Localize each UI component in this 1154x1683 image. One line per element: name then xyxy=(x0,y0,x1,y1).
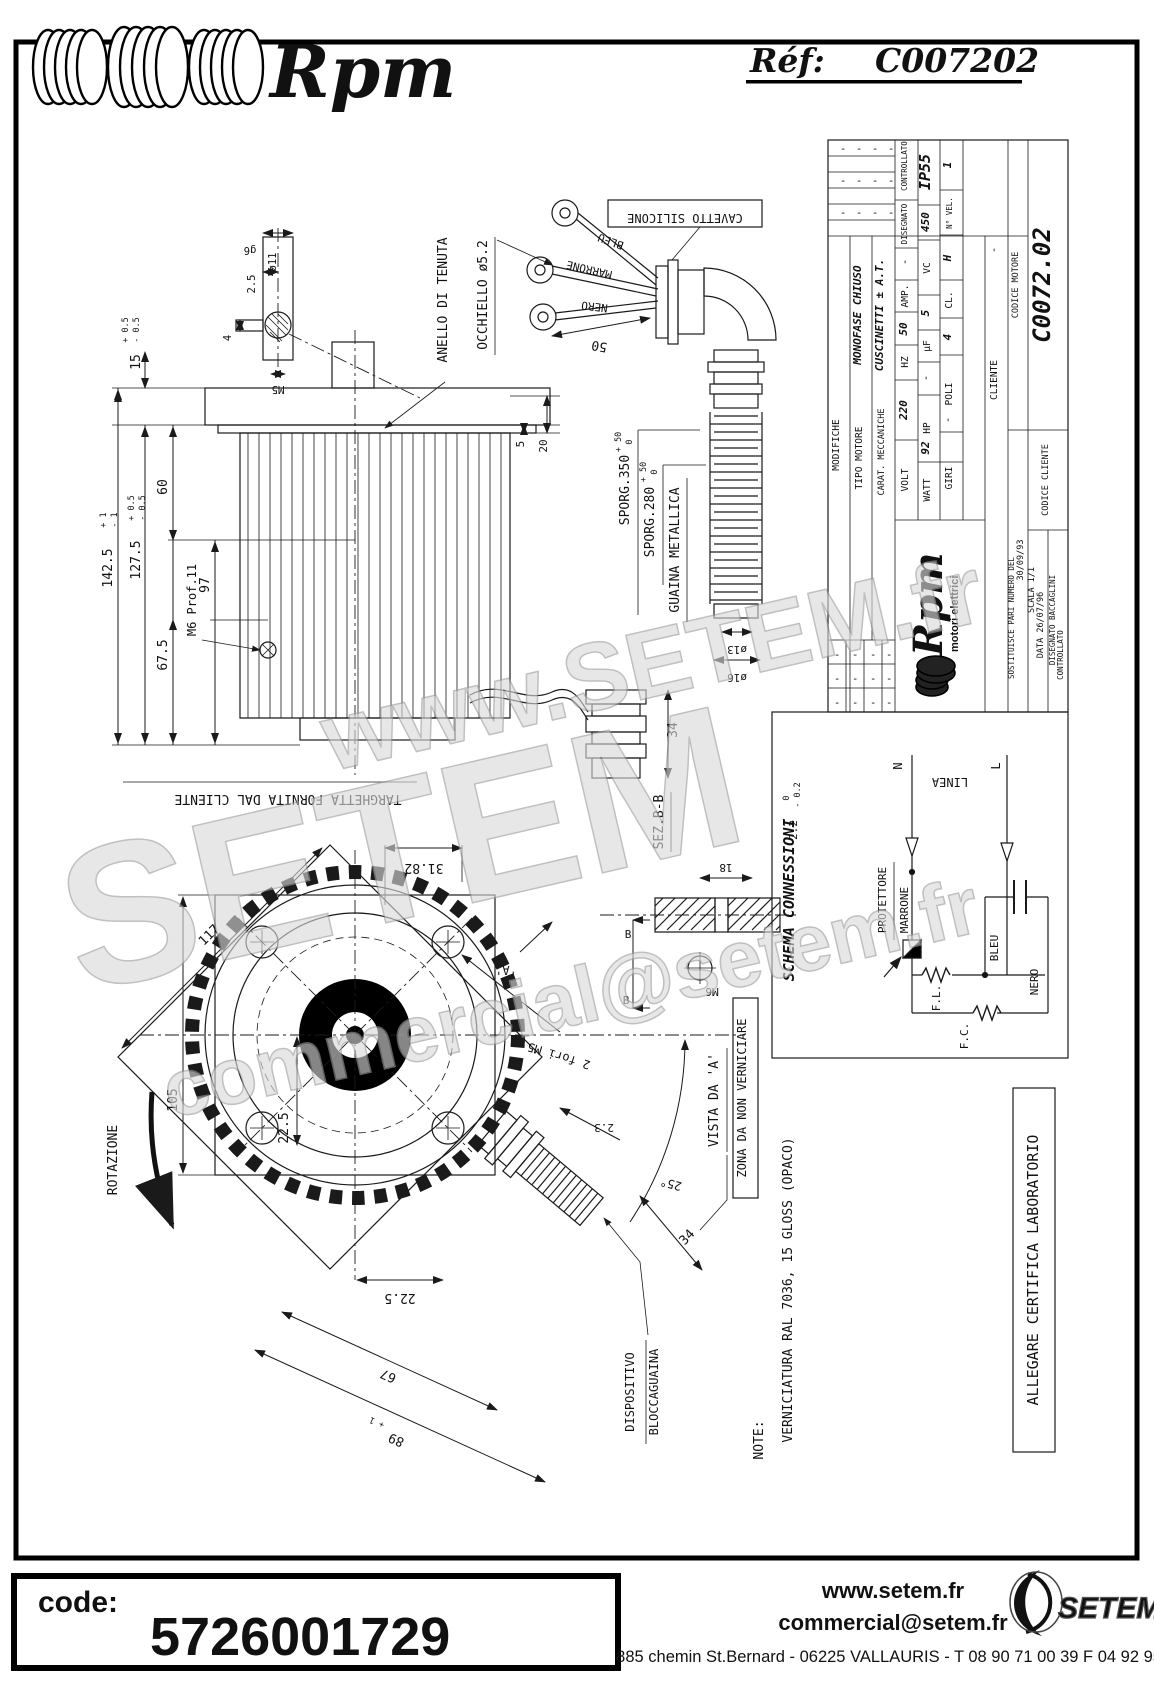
svg-text:µF: µF xyxy=(922,340,933,352)
svg-text:+ 50: + 50 xyxy=(614,432,624,452)
setem-logo: SETEM xyxy=(1010,1570,1154,1636)
setem-logo-text: SETEM xyxy=(1058,1592,1154,1625)
schema-linea: LINEA xyxy=(931,775,968,789)
wire-nero: NERO xyxy=(581,298,609,314)
dim-60: 60 xyxy=(156,479,171,495)
label-rotazione: ROTAZIONE xyxy=(106,1125,121,1195)
front-conduit xyxy=(474,1107,610,1233)
tb-codmot-label: CODICE MOTORE xyxy=(1011,252,1021,319)
dim-67-5: 67.5 xyxy=(156,639,171,670)
svg-text:-: - xyxy=(834,697,840,709)
svg-text:-: - xyxy=(888,143,894,155)
wire-bleu: BLEU xyxy=(596,231,625,252)
tb-data-row: DATA 26/07/96 xyxy=(1036,592,1046,659)
tb-volt: 220 xyxy=(897,400,910,421)
label-dispositivo-1: DISPOSITIVO xyxy=(623,1352,637,1431)
schema-nero: NERO xyxy=(1028,969,1041,996)
svg-text:-: - xyxy=(840,143,846,155)
svg-text:0: 0 xyxy=(625,439,635,444)
svg-text:+ 0.5: + 0.5 xyxy=(121,317,131,343)
dim-22-5-h: 22.5 xyxy=(384,1290,415,1305)
tb-cliente: CLIENTE xyxy=(989,360,1000,400)
label-dispositivo-2: BLOCCAGUAINA xyxy=(647,1348,661,1435)
dim-34-front: 34 xyxy=(677,1227,699,1249)
svg-text:+ 0.5: + 0.5 xyxy=(127,495,137,521)
dim-50: 50 xyxy=(590,337,608,354)
svg-text:0: 0 xyxy=(782,795,792,800)
svg-text:+ 1: + 1 xyxy=(99,512,109,527)
label-occhiello: OCCHIELLO ø5.2 xyxy=(476,240,491,350)
tb-carat-label: CARAT. MECCANICHE xyxy=(877,409,887,496)
footer-site: www.setem.fr xyxy=(821,1578,965,1603)
dim-m5: M5 xyxy=(272,383,285,395)
svg-text:-: - xyxy=(856,143,862,155)
note-text: VERNICIATURA RAL 7036, 15 GLOSS (OPACO) xyxy=(781,1137,796,1442)
label-vista: VISTA DA 'A' xyxy=(707,1053,722,1147)
svg-text:-: - xyxy=(888,207,894,219)
schema-l: L xyxy=(989,762,1003,769)
svg-text:HZ: HZ xyxy=(900,356,911,368)
svg-text:-: - xyxy=(852,673,858,685)
svg-text:0: 0 xyxy=(650,469,660,474)
dim-142-5: 142.5 xyxy=(101,548,116,587)
svg-text:50: 50 xyxy=(897,322,910,336)
tb-tipo-value: MONOFASE CHIUSO xyxy=(851,265,864,366)
dim-2-3: 2.3 xyxy=(594,1121,614,1134)
dim-25-deg: 25° xyxy=(659,1174,684,1193)
svg-text:-: - xyxy=(872,207,878,219)
dim-2-2: 2.2 xyxy=(787,820,800,840)
elbow-conduit xyxy=(704,268,776,618)
svg-text:WATT: WATT xyxy=(922,478,933,501)
svg-text:SPORG.280: SPORG.280 xyxy=(643,487,658,557)
svg-text:-: - xyxy=(870,673,876,685)
svg-text:- 0.5: - 0.5 xyxy=(132,317,142,343)
code-label: code: xyxy=(38,1586,118,1619)
tb-disegnato: DISEGNATO xyxy=(900,203,909,244)
label-cavetto: CAVETTO SILICONE xyxy=(627,211,743,225)
dim-dia11: ø11 xyxy=(267,253,279,272)
dim-127-5: 127.5 xyxy=(129,540,144,579)
ref-value: C007202 xyxy=(875,41,1039,80)
tb-carat-value: CUSCINETTI ± A.T. xyxy=(873,259,886,372)
dim-22-5-v: 22.5 xyxy=(277,1112,292,1143)
dim-89: 89 xyxy=(386,1429,406,1449)
tb-controllato: CONTROLLATO xyxy=(900,141,909,191)
ref-underline xyxy=(746,80,1022,84)
dim-20: 20 xyxy=(537,439,550,452)
rpm-coils-logo xyxy=(33,27,263,107)
svg-text:-: - xyxy=(899,259,911,265)
tb-sost-date: 30/09/93 xyxy=(1016,540,1026,581)
tb-sostituisce: SOSTITUISCE PARI NUMERO DEL xyxy=(1007,557,1016,679)
allegare-box: ALLEGARE CERTIFICA LABORATORIO xyxy=(1013,1088,1055,1452)
svg-text:GIRI: GIRI xyxy=(944,467,955,490)
tb-vc-value: 450 xyxy=(919,212,932,232)
watermarks: www.SETEM.fr SETEM commercial@setem.fr xyxy=(40,536,993,1135)
svg-text:-: - xyxy=(840,207,846,219)
svg-text:-: - xyxy=(920,375,932,381)
svg-text:-: - xyxy=(870,697,876,709)
svg-text:POLI: POLI xyxy=(944,383,955,406)
tb-nvel-value: 1 xyxy=(941,162,954,169)
tb-ip: IP55 xyxy=(916,154,934,190)
svg-text:SPORG.350: SPORG.350 xyxy=(618,455,633,525)
svg-text:+ 1: + 1 xyxy=(368,1414,386,1429)
label-zona: ZONA DA NON VERNICIARE xyxy=(735,1019,749,1178)
brand-title: Rpm xyxy=(268,29,456,114)
sporg-labels: SPORG.350 + 50 0 SPORG.280 + 50 0 GUAINA… xyxy=(614,430,706,622)
code-value: 5726001729 xyxy=(150,1607,450,1667)
schema-bleu: BLEU xyxy=(988,935,1001,962)
svg-text:- 0.2: - 0.2 xyxy=(793,782,803,808)
dim-15: 15 xyxy=(129,354,144,370)
tb-codcli-label: CODICE CLIENTE xyxy=(1041,444,1051,516)
dim-m6-prof: M6 Prof.11 xyxy=(185,564,199,636)
tb-tipo-label: TIPO MOTORE xyxy=(854,426,865,489)
svg-text:-: - xyxy=(872,175,878,187)
svg-text:-: - xyxy=(856,207,862,219)
tb-modifiche: MODIFICHE xyxy=(831,419,842,471)
stud-detail: ø11 g6 2.5 4 M5 xyxy=(222,228,420,398)
label-anello: ANELLO DI TENUTA xyxy=(436,237,451,362)
allegare-text: ALLEGARE CERTIFICA LABORATORIO xyxy=(1024,1135,1042,1406)
dim-4: 4 xyxy=(222,335,234,341)
dim-67: 67 xyxy=(378,1365,398,1385)
svg-text:-: - xyxy=(872,143,878,155)
schema-fc: F.C. xyxy=(958,1023,971,1050)
svg-text:CL.: CL. xyxy=(944,291,955,308)
svg-text:-: - xyxy=(840,175,846,187)
schema-fl: F.L. xyxy=(930,985,943,1012)
footer: code: 5726001729 www.setem.fr commercial… xyxy=(14,1570,1154,1668)
svg-text:-: - xyxy=(852,697,858,709)
svg-text:-: - xyxy=(886,697,892,709)
svg-text:+ 50: + 50 xyxy=(639,462,649,482)
schema-n: N xyxy=(891,762,905,769)
tb-watt-value: 92 xyxy=(919,441,932,455)
tb-poli-value: 4 xyxy=(941,333,954,340)
tb-uf-value: 5 xyxy=(919,309,932,316)
svg-text:VOLT: VOLT xyxy=(900,468,911,491)
svg-text:HP: HP xyxy=(922,422,933,434)
svg-text:-: - xyxy=(888,175,894,187)
svg-text:-: - xyxy=(988,247,1000,253)
svg-text:-: - xyxy=(942,417,954,423)
tb-codmot-value: C0072.02 xyxy=(1028,227,1056,343)
tb-amp: AMP. xyxy=(900,285,911,308)
tb-controllato-row: CONTROLLATO xyxy=(1056,630,1065,680)
svg-text:-: - xyxy=(856,175,862,187)
ref-label: Réf: xyxy=(749,41,825,80)
svg-text:N° VEL.: N° VEL. xyxy=(945,197,954,229)
label-guaina: GUAINA METALLICA xyxy=(668,487,683,612)
svg-text:-: - xyxy=(886,673,892,685)
footer-email: commercial@setem.fr xyxy=(778,1610,1008,1635)
wire-marrone: MARRONE xyxy=(565,258,613,281)
dim-g6: g6 xyxy=(244,244,257,256)
tb-cl-value: H xyxy=(941,254,954,262)
footer-address: 885 chemin St.Bernard - 06225 VALLAURIS … xyxy=(616,1648,1154,1666)
drawing-page: Rpm Réf: C007202 ---- ---- ---- ---- ---… xyxy=(0,0,1154,1683)
dim-97: 97 xyxy=(198,577,213,593)
drawing-canvas: Rpm Réf: C007202 ---- ---- ---- ---- ---… xyxy=(0,0,1154,1683)
dim-5: 5 xyxy=(514,441,527,448)
svg-text:VC: VC xyxy=(922,262,933,273)
note-label: NOTE: xyxy=(752,1420,767,1459)
dim-2-5: 2.5 xyxy=(246,275,258,294)
svg-text:- 0.5: - 0.5 xyxy=(138,495,148,521)
svg-text:- 1: - 1 xyxy=(110,512,120,527)
